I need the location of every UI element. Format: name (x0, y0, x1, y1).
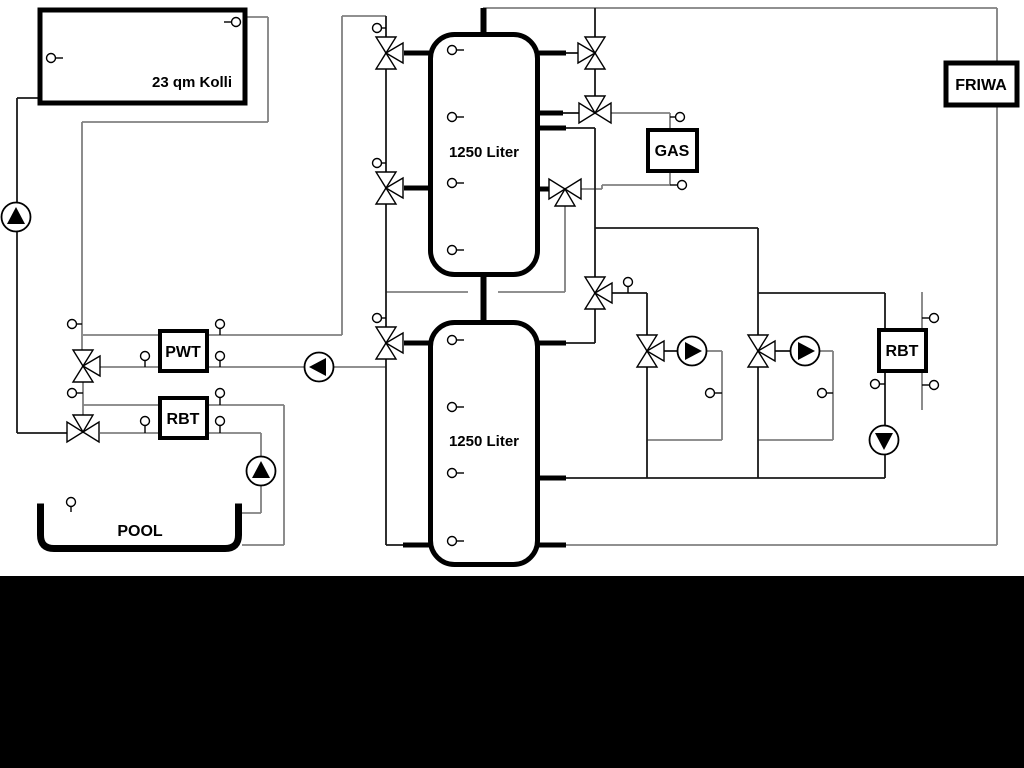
friwa-label: FRIWA (955, 77, 1007, 94)
temperature-sensor-icon (373, 159, 387, 168)
temperature-sensor-icon (216, 389, 225, 406)
temperature-sensor-icon (670, 113, 685, 122)
rbt-right-label: RBT (886, 343, 919, 360)
rbt-left-label: RBT (167, 411, 200, 428)
temperature-sensor-icon (68, 389, 84, 398)
three-way-valve (578, 37, 605, 69)
three-way-valve (637, 335, 664, 367)
temperature-sensor-icon (818, 389, 834, 398)
pump-solar (2, 203, 31, 232)
temperature-sensor-icon (922, 381, 939, 390)
temperature-sensor-icon (68, 320, 83, 329)
three-way-valve (579, 96, 611, 123)
temperature-sensor-icon (216, 352, 225, 368)
tank-2-label: 1250 Liter (449, 433, 519, 450)
temperature-sensor-icon (141, 352, 150, 368)
temperature-sensor-icon (216, 320, 225, 336)
three-way-valve (748, 335, 775, 367)
pool-label: POOL (117, 523, 163, 540)
schematic-page: 23 qm Kolli 1250 Liter 1250 Liter GAS FR… (0, 0, 1024, 768)
collector-label: 23 qm Kolli (152, 74, 232, 91)
three-way-valve (67, 415, 99, 442)
pwt-label: PWT (165, 344, 201, 361)
temperature-sensor-icon (670, 181, 687, 190)
temperature-sensor-icon (706, 389, 723, 398)
three-way-valve (376, 172, 403, 204)
pump-pwt (305, 353, 334, 382)
pump-heating-2 (791, 337, 820, 366)
three-way-valve (73, 350, 100, 382)
three-way-valve (549, 179, 581, 206)
temperature-sensor-icon (871, 380, 886, 389)
temperature-sensor-icon (67, 498, 76, 513)
temperature-sensor-icon (373, 314, 387, 323)
three-way-valve (376, 327, 403, 359)
tank-1-label: 1250 Liter (449, 144, 519, 161)
temperature-sensor-icon (922, 314, 939, 323)
pump-heating-1 (678, 337, 707, 366)
temperature-sensor-icon (373, 24, 387, 33)
temperature-sensor-icon (141, 417, 150, 434)
three-way-valve (585, 277, 612, 309)
three-way-valve (376, 37, 403, 69)
pump-pool (247, 457, 276, 486)
temperature-sensor-icon (624, 278, 633, 294)
gas-label: GAS (655, 143, 690, 160)
temperature-sensor-icon (216, 417, 225, 434)
black-footer-band (0, 576, 1024, 768)
heating-schematic: 23 qm Kolli 1250 Liter 1250 Liter GAS FR… (0, 0, 1024, 576)
pump-rbt-right (870, 426, 899, 455)
